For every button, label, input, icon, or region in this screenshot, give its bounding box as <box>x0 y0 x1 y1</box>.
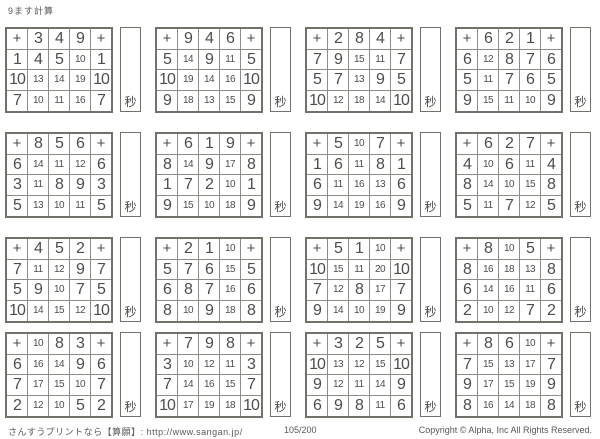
right-operand-cell: 7 <box>91 375 113 396</box>
footer-page-number: 105/200 <box>284 425 317 435</box>
left-operand-cell: 1 <box>156 175 178 196</box>
answer-cell: 2 <box>199 175 220 196</box>
top-operand-cell: 8 <box>478 238 499 259</box>
calc-block-16: +8610+715131779171519981614188秒 <box>455 332 592 420</box>
answer-cell: 12 <box>70 301 91 322</box>
nine-square-grid: +619+814917817210191510189 <box>155 132 263 218</box>
left-operand-cell: 10 <box>156 396 178 417</box>
right-operand-cell: 6 <box>91 154 113 175</box>
left-operand-cell: 6 <box>6 154 28 175</box>
answer-cell: 11 <box>70 196 91 217</box>
right-operand-cell: 7 <box>391 49 413 70</box>
top-operand-cell: 5 <box>49 238 70 259</box>
answer-cell: 11 <box>28 175 49 196</box>
right-operand-cell: 9 <box>241 91 263 112</box>
seconds-label: 秒 <box>571 198 590 215</box>
right-operand-cell: 10 <box>241 70 263 91</box>
time-entry-box[interactable]: 秒 <box>120 237 141 322</box>
right-operand-cell: 5 <box>241 49 263 70</box>
answer-cell: 10 <box>199 196 220 217</box>
answer-cell: 20 <box>370 259 391 280</box>
nine-square-grid: +5110+1015112010712817791410199 <box>305 237 413 323</box>
answer-cell: 16 <box>70 91 91 112</box>
answer-cell: 10 <box>520 91 541 112</box>
answer-cell: 11 <box>370 49 391 70</box>
left-operand-cell: 7 <box>6 375 28 396</box>
answer-cell: 12 <box>49 259 70 280</box>
time-entry-box[interactable]: 秒 <box>420 237 441 322</box>
time-entry-box[interactable]: 秒 <box>420 132 441 217</box>
answer-cell: 10 <box>178 354 199 375</box>
top-operand-cell: 4 <box>370 28 391 49</box>
seconds-label: 秒 <box>421 398 440 415</box>
right-operand-cell: 4 <box>541 154 563 175</box>
top-operand-cell: 8 <box>49 333 70 354</box>
answer-cell: 12 <box>328 91 349 112</box>
right-operand-cell: 1 <box>241 175 263 196</box>
footer-copyright: Copyright © Alpha, Inc All Rights Reserv… <box>419 425 592 435</box>
answer-cell: 12 <box>328 280 349 301</box>
top-operand-cell: 6 <box>220 28 241 49</box>
nine-square-grid: +798+31012113714161571017191810 <box>155 332 263 418</box>
right-operand-cell: 3 <box>241 354 263 375</box>
right-operand-cell: 9 <box>241 196 263 217</box>
answer-cell: 15 <box>499 375 520 396</box>
left-operand-cell: 10 <box>306 91 328 112</box>
answer-cell: 19 <box>178 70 199 91</box>
answer-cell: 14 <box>328 301 349 322</box>
time-entry-box[interactable]: 秒 <box>270 237 291 322</box>
right-operand-cell: 8 <box>541 396 563 417</box>
left-operand-cell: 7 <box>306 280 328 301</box>
seconds-label: 秒 <box>121 198 140 215</box>
answer-cell: 8 <box>370 154 391 175</box>
left-operand-cell: 6 <box>456 280 478 301</box>
operator-cell: + <box>241 238 263 259</box>
answer-cell: 18 <box>220 301 241 322</box>
nine-square-grid: +8105+81618138614161162101272 <box>455 237 563 323</box>
right-operand-cell: 6 <box>241 280 263 301</box>
operator-cell: + <box>456 238 478 259</box>
right-operand-cell: 7 <box>241 375 263 396</box>
answer-cell: 15 <box>49 301 70 322</box>
right-operand-cell: 8 <box>241 301 263 322</box>
left-operand-cell: 5 <box>156 49 178 70</box>
right-operand-cell: 9 <box>391 375 413 396</box>
answer-cell: 15 <box>520 175 541 196</box>
answer-cell: 11 <box>328 175 349 196</box>
time-entry-box[interactable]: 秒 <box>270 27 291 112</box>
answer-cell: 7 <box>520 49 541 70</box>
top-operand-cell: 5 <box>328 238 349 259</box>
top-operand-cell: 1 <box>520 28 541 49</box>
top-operand-cell: 6 <box>178 133 199 154</box>
seconds-label: 秒 <box>121 93 140 110</box>
answer-cell: 6 <box>328 154 349 175</box>
answer-cell: 15 <box>220 375 241 396</box>
operator-cell: + <box>541 333 563 354</box>
left-operand-cell: 9 <box>306 196 328 217</box>
answer-cell: 10 <box>220 175 241 196</box>
nine-square-grid: +452+71112975910751014151210 <box>5 237 113 323</box>
answer-cell: 10 <box>478 301 499 322</box>
left-operand-cell: 10 <box>6 301 28 322</box>
seconds-label: 秒 <box>271 93 290 110</box>
time-entry-box[interactable]: 秒 <box>120 132 141 217</box>
answer-cell: 9 <box>199 301 220 322</box>
answer-cell: 14 <box>499 396 520 417</box>
time-entry-box[interactable]: 秒 <box>120 27 141 112</box>
right-operand-cell: 6 <box>91 354 113 375</box>
answer-cell: 6 <box>199 259 220 280</box>
answer-cell: 11 <box>520 280 541 301</box>
right-operand-cell: 2 <box>91 396 113 417</box>
answer-cell: 11 <box>478 196 499 217</box>
left-operand-cell: 7 <box>456 354 478 375</box>
right-operand-cell: 10 <box>91 70 113 91</box>
answer-cell: 5 <box>70 396 91 417</box>
operator-cell: + <box>156 133 178 154</box>
top-operand-cell: 6 <box>70 133 91 154</box>
page-footer: さんすうプリントなら【算願】: http://www.sangan.jp/ 10… <box>0 425 600 439</box>
answer-cell: 15 <box>49 375 70 396</box>
calc-block-2: +946+5149115101914161091813159秒 <box>155 27 292 115</box>
answer-cell: 13 <box>28 70 49 91</box>
answer-cell: 13 <box>199 91 220 112</box>
top-operand-cell: 9 <box>220 133 241 154</box>
answer-cell: 15 <box>328 259 349 280</box>
answer-cell: 10 <box>70 49 91 70</box>
right-operand-cell: 5 <box>241 259 263 280</box>
right-operand-cell: 9 <box>541 91 563 112</box>
left-operand-cell: 6 <box>156 280 178 301</box>
right-operand-cell: 7 <box>391 280 413 301</box>
answer-cell: 18 <box>499 259 520 280</box>
operator-cell: + <box>156 28 178 49</box>
answer-cell: 9 <box>370 70 391 91</box>
answer-cell: 11 <box>499 91 520 112</box>
right-operand-cell: 6 <box>391 175 413 196</box>
time-entry-box[interactable]: 秒 <box>120 332 141 417</box>
calc-block-12: +8105+81618138614161162101272秒 <box>455 237 592 325</box>
nine-square-grid: +5107+1611816111613691419169 <box>305 132 413 218</box>
seconds-label: 秒 <box>421 93 440 110</box>
right-operand-cell: 8 <box>541 259 563 280</box>
nine-square-grid: +946+5149115101914161091813159 <box>155 27 263 113</box>
left-operand-cell: 10 <box>306 354 328 375</box>
operator-cell: + <box>91 133 113 154</box>
operator-cell: + <box>91 333 113 354</box>
answer-cell: 7 <box>178 259 199 280</box>
answer-cell: 14 <box>178 154 199 175</box>
answer-cell: 4 <box>28 49 49 70</box>
right-operand-cell: 6 <box>541 280 563 301</box>
left-operand-cell: 9 <box>306 301 328 322</box>
time-entry-box[interactable]: 秒 <box>570 237 591 322</box>
top-operand-cell: 9 <box>70 28 91 49</box>
answer-cell: 13 <box>499 354 520 375</box>
operator-cell: + <box>391 238 413 259</box>
answer-cell: 14 <box>178 49 199 70</box>
time-entry-box[interactable]: 秒 <box>420 27 441 112</box>
answer-cell: 11 <box>349 259 370 280</box>
left-operand-cell: 8 <box>456 175 478 196</box>
operator-cell: + <box>91 28 113 49</box>
answer-cell: 10 <box>499 175 520 196</box>
operator-cell: + <box>456 133 478 154</box>
answer-cell: 8 <box>49 175 70 196</box>
answer-cell: 5 <box>49 49 70 70</box>
left-operand-cell: 9 <box>156 196 178 217</box>
answer-cell: 14 <box>28 154 49 175</box>
footer-site-text: さんすうプリントなら【算願】: http://www.sangan.jp/ <box>8 425 243 438</box>
answer-cell: 11 <box>478 70 499 91</box>
answer-cell: 11 <box>349 375 370 396</box>
top-operand-cell: 2 <box>499 133 520 154</box>
top-operand-cell: 6 <box>499 333 520 354</box>
left-operand-cell: 5 <box>6 280 28 301</box>
answer-cell: 7 <box>199 280 220 301</box>
answer-cell: 13 <box>520 259 541 280</box>
top-operand-cell: 4 <box>49 28 70 49</box>
answer-cell: 10 <box>349 301 370 322</box>
top-operand-cell: 8 <box>478 333 499 354</box>
nine-square-grid: +627+4106114814101585117125 <box>455 132 563 218</box>
right-operand-cell: 9 <box>391 301 413 322</box>
answer-cell: 14 <box>49 70 70 91</box>
top-operand-cell: 2 <box>499 28 520 49</box>
calc-block-15: +325+101312151091211149698116秒 <box>305 332 442 420</box>
calc-block-7: +5107+1611816111613691419169秒 <box>305 132 442 220</box>
calc-block-10: +2110+5761556871668109188秒 <box>155 237 292 325</box>
answer-cell: 13 <box>349 70 370 91</box>
left-operand-cell: 7 <box>6 259 28 280</box>
seconds-label: 秒 <box>121 398 140 415</box>
left-operand-cell: 1 <box>6 49 28 70</box>
answer-cell: 17 <box>370 280 391 301</box>
right-operand-cell: 9 <box>541 375 563 396</box>
calc-block-5: +856+6141112631189351310115秒 <box>5 132 142 220</box>
left-operand-cell: 8 <box>456 259 478 280</box>
answer-cell: 7 <box>499 196 520 217</box>
answer-cell: 9 <box>199 49 220 70</box>
answer-cell: 14 <box>178 375 199 396</box>
top-operand-cell: 3 <box>70 333 91 354</box>
answer-cell: 16 <box>478 259 499 280</box>
left-operand-cell: 7 <box>6 91 28 112</box>
operator-cell: + <box>156 333 178 354</box>
right-operand-cell: 1 <box>91 49 113 70</box>
top-operand-cell: 5 <box>49 133 70 154</box>
operator-cell: + <box>541 238 563 259</box>
answer-cell: 19 <box>520 375 541 396</box>
blocks-container: +349+145101101314191071011167秒+946+51491… <box>0 0 600 420</box>
right-operand-cell: 1 <box>391 154 413 175</box>
left-operand-cell: 10 <box>6 70 28 91</box>
answer-cell: 16 <box>199 375 220 396</box>
right-operand-cell: 9 <box>391 196 413 217</box>
left-operand-cell: 7 <box>306 49 328 70</box>
answer-cell: 7 <box>520 301 541 322</box>
calc-block-11: +5110+1015112010712817791410199秒 <box>305 237 442 325</box>
answer-cell: 11 <box>520 154 541 175</box>
right-operand-cell: 6 <box>541 49 563 70</box>
answer-cell: 9 <box>28 280 49 301</box>
operator-cell: + <box>306 133 328 154</box>
nine-square-grid: +8610+715131779171519981614188 <box>455 332 563 418</box>
top-operand-cell: 2 <box>70 238 91 259</box>
left-operand-cell: 3 <box>156 354 178 375</box>
answer-cell: 11 <box>220 49 241 70</box>
time-entry-box[interactable]: 秒 <box>270 132 291 217</box>
operator-cell: + <box>241 133 263 154</box>
right-operand-cell: 10 <box>91 301 113 322</box>
operator-cell: + <box>6 238 28 259</box>
answer-cell: 6 <box>520 70 541 91</box>
answer-cell: 6 <box>499 154 520 175</box>
seconds-label: 秒 <box>571 303 590 320</box>
operator-cell: + <box>306 333 328 354</box>
answer-cell: 17 <box>178 396 199 417</box>
answer-cell: 18 <box>220 196 241 217</box>
top-operand-cell: 5 <box>370 333 391 354</box>
answer-cell: 9 <box>70 354 91 375</box>
top-operand-cell: 2 <box>349 333 370 354</box>
answer-cell: 9 <box>199 154 220 175</box>
answer-cell: 12 <box>478 49 499 70</box>
operator-cell: + <box>156 238 178 259</box>
top-operand-cell: 7 <box>520 133 541 154</box>
answer-cell: 18 <box>178 91 199 112</box>
answer-cell: 12 <box>520 196 541 217</box>
answer-cell: 16 <box>478 396 499 417</box>
calc-block-1: +349+145101101314191071011167秒 <box>5 27 142 115</box>
top-operand-cell: 3 <box>28 28 49 49</box>
answer-cell: 13 <box>328 354 349 375</box>
calc-block-3: +284+79151175713951012181410秒 <box>305 27 442 115</box>
answer-cell: 8 <box>349 280 370 301</box>
right-operand-cell: 7 <box>91 259 113 280</box>
top-operand-cell: 8 <box>28 133 49 154</box>
calc-block-8: +627+4106114814101585117125秒 <box>455 132 592 220</box>
answer-cell: 16 <box>370 196 391 217</box>
operator-cell: + <box>6 333 28 354</box>
nine-square-grid: +325+101312151091211149698116 <box>305 332 413 418</box>
left-operand-cell: 8 <box>156 301 178 322</box>
right-operand-cell: 5 <box>541 70 563 91</box>
answer-cell: 8 <box>178 280 199 301</box>
seconds-label: 秒 <box>571 398 590 415</box>
right-operand-cell: 5 <box>541 196 563 217</box>
time-entry-box[interactable]: 秒 <box>270 332 291 417</box>
answer-cell: 11 <box>49 154 70 175</box>
answer-cell: 18 <box>349 91 370 112</box>
operator-cell: + <box>6 28 28 49</box>
operator-cell: + <box>391 28 413 49</box>
left-operand-cell: 9 <box>156 91 178 112</box>
left-operand-cell: 9 <box>306 375 328 396</box>
answer-cell: 15 <box>349 49 370 70</box>
answer-cell: 13 <box>28 196 49 217</box>
answer-cell: 19 <box>70 70 91 91</box>
answer-cell: 17 <box>220 154 241 175</box>
right-operand-cell: 10 <box>391 91 413 112</box>
top-operand-cell: 7 <box>370 133 391 154</box>
answer-cell: 19 <box>199 396 220 417</box>
answer-cell: 19 <box>370 301 391 322</box>
answer-cell: 10 <box>28 91 49 112</box>
nine-square-grid: +621+61287651176591511109 <box>455 27 563 113</box>
left-operand-cell: 10 <box>156 70 178 91</box>
operator-cell: + <box>391 333 413 354</box>
time-entry-box[interactable]: 秒 <box>570 132 591 217</box>
answer-cell: 11 <box>49 91 70 112</box>
top-operand-cell: 6 <box>478 133 499 154</box>
answer-cell: 16 <box>349 175 370 196</box>
answer-cell: 9 <box>70 175 91 196</box>
operator-cell: + <box>456 28 478 49</box>
answer-cell: 17 <box>28 375 49 396</box>
answer-cell: 14 <box>49 354 70 375</box>
left-operand-cell: 5 <box>306 70 328 91</box>
seconds-label: 秒 <box>121 303 140 320</box>
top-operand-cell: 10 <box>499 238 520 259</box>
nine-square-grid: +284+79151175713951012181410 <box>305 27 413 113</box>
answer-cell: 14 <box>328 196 349 217</box>
answer-cell: 14 <box>370 91 391 112</box>
right-operand-cell: 5 <box>391 70 413 91</box>
time-entry-box[interactable]: 秒 <box>420 332 441 417</box>
right-operand-cell: 2 <box>541 301 563 322</box>
left-operand-cell: 3 <box>6 175 28 196</box>
answer-cell: 7 <box>178 175 199 196</box>
right-operand-cell: 6 <box>391 396 413 417</box>
answer-cell: 11 <box>370 396 391 417</box>
seconds-label: 秒 <box>271 198 290 215</box>
answer-cell: 16 <box>499 280 520 301</box>
top-operand-cell: 10 <box>220 238 241 259</box>
answer-cell: 19 <box>349 196 370 217</box>
answer-cell: 8 <box>349 396 370 417</box>
left-operand-cell: 7 <box>156 375 178 396</box>
answer-cell: 11 <box>28 259 49 280</box>
answer-cell: 12 <box>349 354 370 375</box>
time-entry-box[interactable]: 秒 <box>570 332 591 417</box>
answer-cell: 18 <box>520 396 541 417</box>
operator-cell: + <box>306 28 328 49</box>
top-operand-cell: 5 <box>328 133 349 154</box>
top-operand-cell: 1 <box>349 238 370 259</box>
seconds-label: 秒 <box>421 198 440 215</box>
left-operand-cell: 6 <box>6 354 28 375</box>
left-operand-cell: 8 <box>456 396 478 417</box>
calc-block-14: +798+31012113714161571017191810秒 <box>155 332 292 420</box>
seconds-label: 秒 <box>271 303 290 320</box>
answer-cell: 16 <box>220 280 241 301</box>
answer-cell: 11 <box>349 154 370 175</box>
answer-cell: 9 <box>70 259 91 280</box>
operator-cell: + <box>456 333 478 354</box>
right-operand-cell: 3 <box>91 175 113 196</box>
answer-cell: 11 <box>220 354 241 375</box>
top-operand-cell: 10 <box>370 238 391 259</box>
answer-cell: 10 <box>49 280 70 301</box>
left-operand-cell: 5 <box>456 196 478 217</box>
answer-cell: 16 <box>28 354 49 375</box>
calc-block-13: +1083+6161496717151072121052秒 <box>5 332 142 420</box>
time-entry-box[interactable]: 秒 <box>570 27 591 112</box>
top-operand-cell: 3 <box>328 333 349 354</box>
